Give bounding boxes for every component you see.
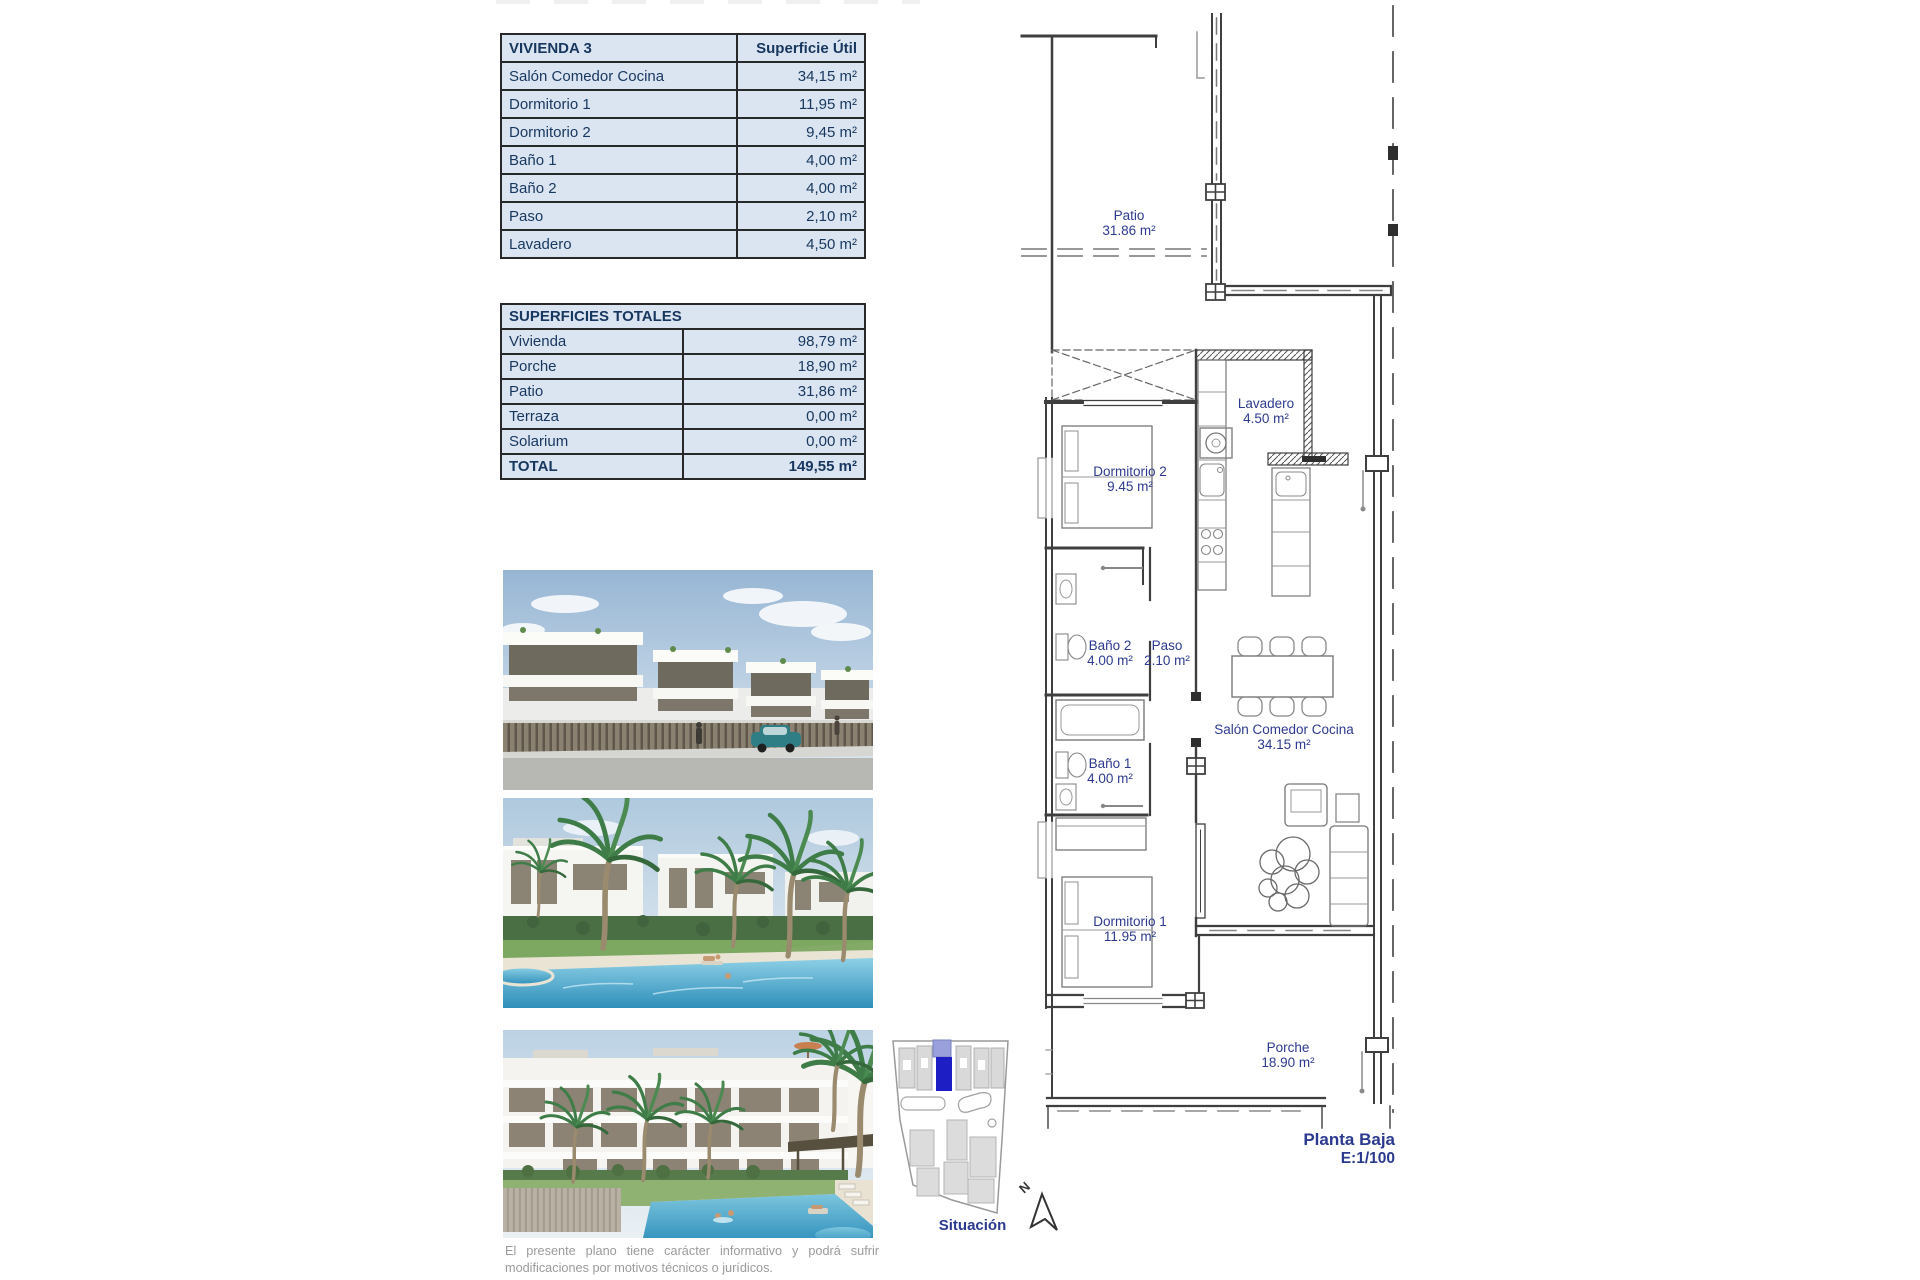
cropped-header-remnant	[496, 0, 920, 4]
room-label-bano2: Baño 2	[1089, 638, 1132, 653]
row-value: 11,95 m²	[737, 90, 865, 118]
row-value: 0,00 m²	[683, 404, 865, 429]
row-label: Salón Comedor Cocina	[501, 62, 737, 90]
room-label-bano1: Baño 1	[1089, 756, 1132, 771]
row-value: 9,45 m²	[737, 118, 865, 146]
round-pool	[503, 967, 553, 985]
row-label: Dormitorio 2	[501, 118, 737, 146]
room-area-paso: 2.10 m²	[1144, 653, 1190, 668]
row-value: 4,00 m²	[737, 174, 865, 202]
highlighted-unit-upper	[933, 1040, 951, 1057]
disclaimer-line2: modificaciones por motivos técnicos o ju…	[505, 1260, 879, 1277]
room-label-salon: Salón Comedor Cocina	[1214, 722, 1354, 737]
road	[503, 758, 873, 790]
situacion-map	[880, 1030, 1020, 1245]
row-label: Terraza	[501, 404, 683, 429]
table-header-row: VIVIENDA 3 Superficie Útil	[501, 34, 865, 62]
table-row: Dormitorio 29,45 m²	[501, 118, 865, 146]
slat-fence	[503, 1188, 621, 1232]
row-label: Patio	[501, 379, 683, 404]
table-row: Vivienda98,79 m²	[501, 329, 865, 354]
row-value: 0,00 m²	[683, 429, 865, 454]
totales-table-title: SUPERFICIES TOTALES	[501, 304, 865, 329]
room-area-lavadero: 4.50 m²	[1243, 411, 1289, 426]
row-label: Baño 2	[501, 174, 737, 202]
row-value: 4,50 m²	[737, 230, 865, 258]
row-label: Lavadero	[501, 230, 737, 258]
total-row: TOTAL149,55 m²	[501, 454, 865, 479]
row-label: Vivienda	[501, 329, 683, 354]
kitchen-counter	[1198, 360, 1226, 590]
row-label: Porche	[501, 354, 683, 379]
plan-caption-title: Planta Baja	[1245, 1130, 1395, 1150]
room-area-bano2: 4.00 m²	[1087, 653, 1133, 668]
washing-machine	[1200, 428, 1232, 458]
lounge-furniture	[1259, 784, 1368, 926]
render-photo-apartments	[503, 1030, 873, 1238]
road-median	[901, 1097, 945, 1110]
render-photo-street	[503, 570, 873, 790]
row-label: Baño 1	[501, 146, 737, 174]
row-label: Solarium	[501, 429, 683, 454]
plan-caption: Planta Baja E:1/100	[1245, 1130, 1395, 1168]
fence-rail	[503, 720, 873, 723]
table-row: Patio31,86 m²	[501, 379, 865, 404]
situacion-label: Situación	[905, 1217, 1040, 1234]
render-photo-pool	[503, 798, 873, 1008]
room-label-lavadero: Lavadero	[1238, 396, 1294, 411]
room-label-dormitorio1: Dormitorio 1	[1093, 914, 1167, 929]
plan-caption-scale: E:1/100	[1245, 1150, 1395, 1168]
dining-table	[1232, 637, 1333, 716]
total-value: 149,55 m²	[683, 454, 865, 479]
row-label: Paso	[501, 202, 737, 230]
room-label-paso: Paso	[1152, 638, 1183, 653]
footer-disclaimer: El presente plano tiene carácter informa…	[505, 1243, 879, 1276]
table-row: Solarium0,00 m²	[501, 429, 865, 454]
closet	[1056, 818, 1146, 850]
table-row: Salón Comedor Cocina34,15 m²	[501, 62, 865, 90]
row-value: 18,90 m²	[683, 354, 865, 379]
room-label-porche: Porche	[1267, 1040, 1310, 1055]
kitchen-island	[1272, 468, 1310, 596]
table-row: Porche18,90 m²	[501, 354, 865, 379]
row-label: Dormitorio 1	[501, 90, 737, 118]
bathroom1-fixtures	[1056, 700, 1144, 810]
vivienda-table-title: VIVIENDA 3	[501, 34, 737, 62]
room-labels: Patio 31.86 m² Lavadero 4.50 m² Dormitor…	[1087, 208, 1354, 1070]
table-row: Terraza0,00 m²	[501, 404, 865, 429]
table-row: Baño 24,00 m²	[501, 174, 865, 202]
table-row: Baño 14,00 m²	[501, 146, 865, 174]
table-row: Lavadero4,50 m²	[501, 230, 865, 258]
row-value: 98,79 m²	[683, 329, 865, 354]
table-row: Dormitorio 111,95 m²	[501, 90, 865, 118]
highlighted-unit	[936, 1057, 952, 1091]
floor-plan: Patio 31.86 m² Lavadero 4.50 m² Dormitor…	[1020, 0, 1430, 1180]
room-area-patio: 31.86 m²	[1102, 223, 1156, 238]
disclaimer-line1: El presente plano tiene carácter informa…	[505, 1243, 879, 1260]
row-value: 31,86 m²	[683, 379, 865, 404]
table-header-row: SUPERFICIES TOTALES	[501, 304, 865, 329]
totales-table: SUPERFICIES TOTALES Vivienda98,79 m² Por…	[500, 303, 866, 480]
room-area-bano1: 4.00 m²	[1087, 771, 1133, 786]
room-area-dormitorio2: 9.45 m²	[1107, 479, 1153, 494]
vivienda-col-header: Superficie Útil	[737, 34, 865, 62]
table-row: Paso2,10 m²	[501, 202, 865, 230]
room-label-patio: Patio	[1114, 208, 1145, 223]
room-area-porche: 18.90 m²	[1261, 1055, 1315, 1070]
room-label-dormitorio2: Dormitorio 2	[1093, 464, 1167, 479]
room-area-dormitorio1: 11.95 m²	[1104, 929, 1157, 944]
row-value: 4,00 m²	[737, 146, 865, 174]
row-value: 34,15 m²	[737, 62, 865, 90]
total-label: TOTAL	[501, 454, 683, 479]
room-area-salon: 34.15 m²	[1257, 737, 1311, 752]
row-value: 2,10 m²	[737, 202, 865, 230]
vivienda-table: VIVIENDA 3 Superficie Útil Salón Comedor…	[500, 33, 866, 259]
